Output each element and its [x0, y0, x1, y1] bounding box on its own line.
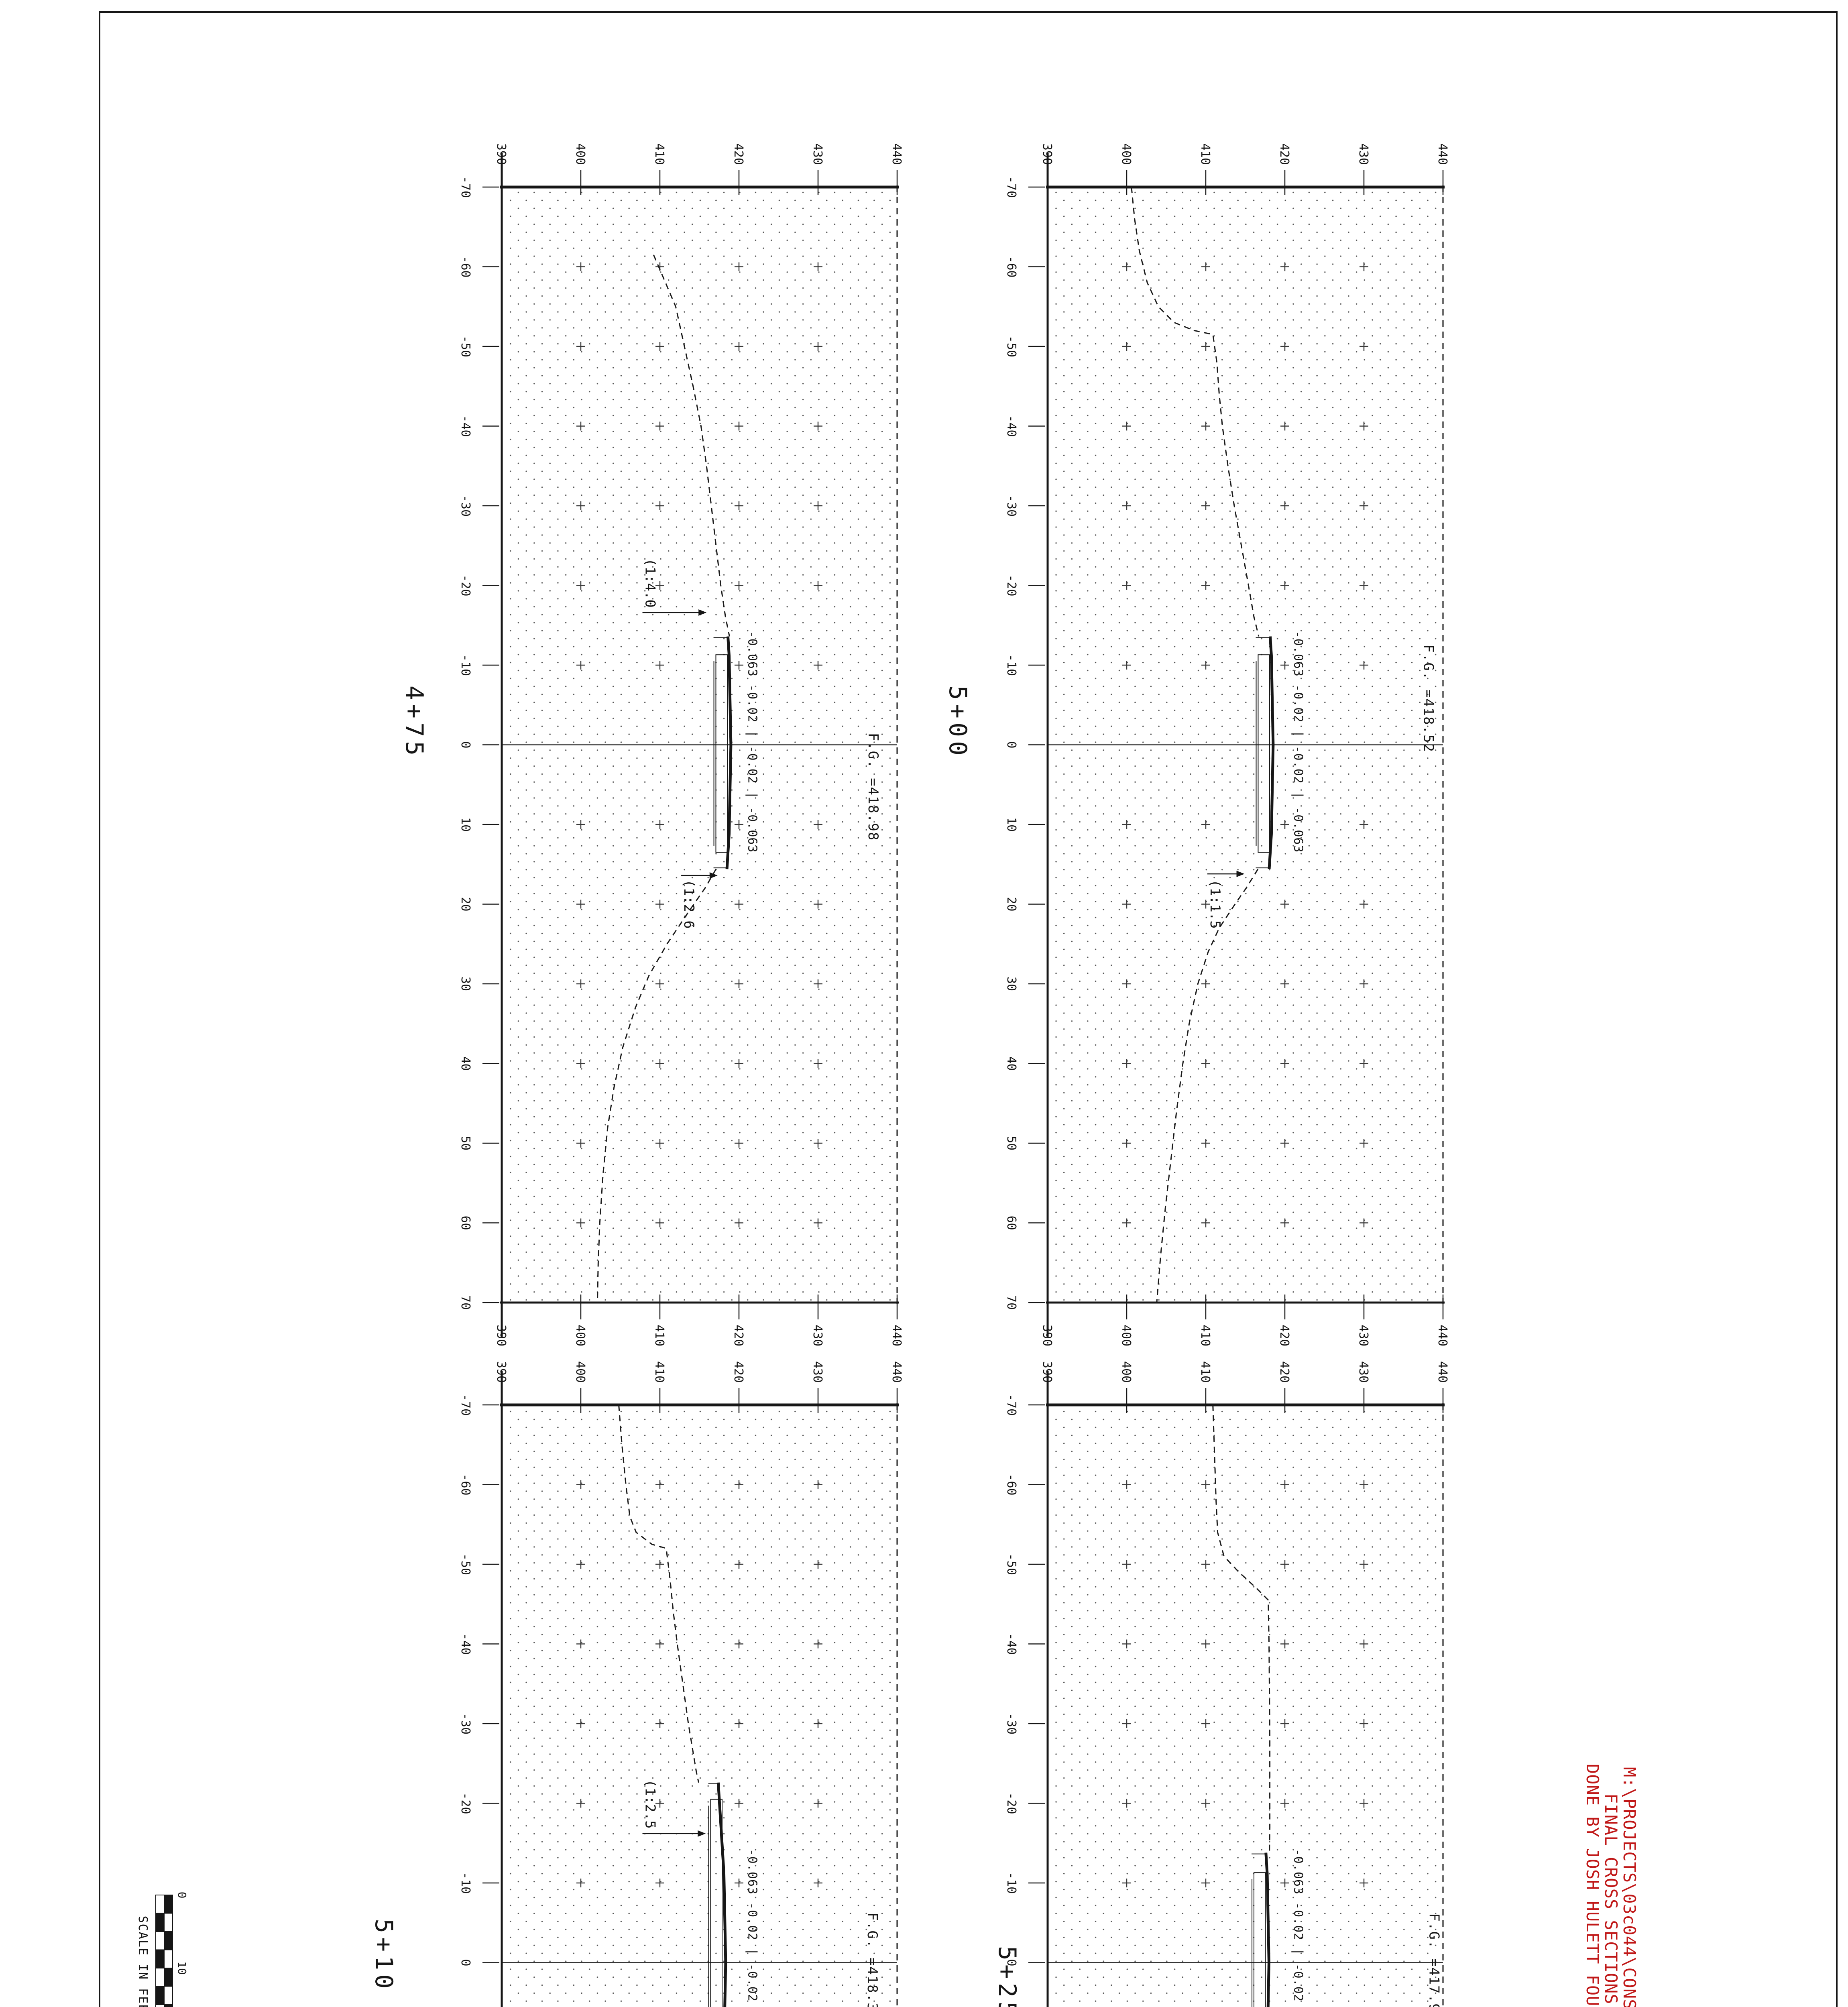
station-label: 4+75	[400, 686, 428, 760]
offset-label: -10	[458, 1872, 472, 1894]
slope-callout-text: (1:1.5	[1207, 879, 1223, 929]
red-note-line-3: DONE BY JOSH HULETT FOUND IN THE ABOVE F…	[1583, 1764, 1602, 2007]
offset-label: 0	[458, 1959, 472, 1966]
offset-label: -70	[458, 1394, 472, 1416]
scale-bar: 01020SCALE IN FEET	[136, 1892, 189, 2007]
elevation-label-left: 440	[889, 143, 904, 165]
offset-label: 0	[458, 741, 472, 748]
elevation-label-left: 420	[731, 1361, 745, 1383]
slope-annotation: -0.063 -0.02 | -0.02 | -0.063	[745, 1849, 759, 2007]
offset-label: 60	[1004, 1215, 1018, 1230]
scale-bar-segment	[164, 2005, 173, 2007]
offset-label: -30	[1004, 495, 1018, 517]
scale-bar-segment	[156, 1932, 164, 1950]
scale-bar-segment	[156, 2005, 164, 2007]
cross-section-5+00: 390390400400410410420420430430440440-70-…	[944, 143, 1449, 1346]
scale-bar-segment	[164, 1968, 173, 1987]
offset-label: 70	[1004, 1295, 1018, 1310]
offset-label: -20	[1004, 574, 1018, 596]
scale-bar-segment	[156, 1913, 164, 1932]
offset-label: 70	[458, 1295, 472, 1310]
offset-label: -60	[1004, 256, 1018, 277]
plots-canvas: 390390400400410410420420430430440440-70-…	[0, 0, 1848, 2007]
offset-label: 60	[458, 1215, 472, 1230]
scale-bar-segment	[164, 1950, 173, 1968]
slope-callout-text: (1:4.0	[642, 558, 658, 608]
offset-label: 0	[1004, 741, 1018, 748]
scale-bar-tick-label: 10	[175, 1961, 189, 1975]
elevation-label-left: 390	[494, 1361, 508, 1383]
station-label: 5+25	[993, 1946, 1021, 2007]
dot-grid	[504, 1407, 895, 2007]
offset-label: -50	[1004, 336, 1018, 357]
offset-label: -40	[458, 1633, 472, 1655]
offset-label: 20	[1004, 897, 1018, 911]
offset-label: -40	[458, 415, 472, 437]
elevation-label-left: 430	[1356, 1361, 1370, 1383]
offset-label: -20	[458, 1792, 472, 1814]
fg-elevation-label: F.G. =418.52	[1421, 644, 1437, 753]
offset-label: 20	[458, 897, 472, 911]
elevation-label-left: 420	[731, 143, 745, 165]
elevation-label-left: 420	[1277, 1361, 1291, 1383]
fg-elevation-label: F.G. =418.32	[864, 1912, 880, 2007]
elevation-label-right: 440	[1435, 1325, 1449, 1346]
offset-label: -60	[1004, 1474, 1018, 1495]
offset-label: 50	[458, 1136, 472, 1150]
slope-annotation: -0.063 -0.02 | -0.02 | -0.063	[745, 631, 759, 853]
elevation-label-left: 400	[573, 143, 587, 165]
elevation-label-right: 390	[494, 1325, 508, 1346]
scale-bar-segment	[164, 1987, 173, 2005]
station-label: 5+00	[944, 686, 972, 760]
elevation-label-left: 390	[1040, 143, 1054, 165]
scale-bar-segment	[164, 1932, 173, 1950]
cross-section-5+25: 390390400400410410420420430430440440-70-…	[993, 1361, 1449, 2007]
elevation-label-left: 390	[1040, 1361, 1054, 1383]
offset-label: 40	[458, 1056, 472, 1071]
elevation-label-left: 410	[652, 143, 666, 165]
offset-label: -10	[1004, 1872, 1018, 1894]
scale-bar-segment	[156, 1987, 164, 2005]
offset-label: 30	[458, 977, 472, 991]
offset-label: -60	[458, 1474, 472, 1495]
elevation-label-left: 410	[1198, 1361, 1212, 1383]
offset-label: 10	[458, 817, 472, 832]
offset-label: -50	[458, 1553, 472, 1575]
elevation-label-left: 410	[652, 1361, 666, 1383]
elevation-label-right: 410	[652, 1325, 666, 1346]
offset-label: 40	[1004, 1056, 1018, 1071]
offset-label: -30	[458, 495, 472, 517]
elevation-label-right: 400	[1119, 1325, 1133, 1346]
slope-callout-text: (1:2.5	[642, 1779, 658, 1829]
offset-label: -40	[1004, 415, 1018, 437]
offset-label: -70	[458, 176, 472, 198]
sheet-border	[100, 12, 1837, 2007]
elevation-label-left: 440	[1435, 143, 1449, 165]
elevation-label-right: 430	[810, 1325, 824, 1346]
elevation-label-left: 400	[573, 1361, 587, 1383]
elevation-label-right: 440	[889, 1325, 904, 1346]
fg-elevation-label: F.G. =418.98	[865, 733, 881, 841]
scanned-sheet-page: 390390400400410410420420430430440440-70-…	[0, 0, 1848, 2007]
red-note-line-2: FINAL CROSS SECTIONS FOR HUBBARDTON ST 0…	[1601, 1793, 1621, 2007]
scale-bar-tick-label: 0	[175, 1892, 189, 1899]
elevation-label-right: 400	[573, 1325, 587, 1346]
offset-label: 10	[1004, 817, 1018, 832]
offset-label: -30	[1004, 1713, 1018, 1734]
scale-bar-segment	[156, 1950, 164, 1968]
elevation-label-left: 400	[1119, 1361, 1133, 1383]
slope-annotation: -0.063 -0.02 | -0.02 | -0.063	[1291, 1849, 1305, 2007]
red-note-line-1: M:\PROJECTS\03c044\CONSTRUCTION\FINAL XS…	[1620, 1767, 1639, 2007]
elevation-label-left: 410	[1198, 143, 1212, 165]
elevation-label-left: 430	[810, 143, 824, 165]
scale-bar-segment	[164, 1895, 173, 1913]
elevation-label-left: 430	[810, 1361, 824, 1383]
offset-label: -20	[458, 574, 472, 596]
slope-callout-text: (1:2.6	[681, 879, 697, 929]
offset-label: 50	[1004, 1136, 1018, 1150]
offset-label: -70	[1004, 176, 1018, 198]
elevation-label-left: 430	[1356, 143, 1370, 165]
elevation-label-right: 420	[731, 1325, 745, 1346]
offset-label: -20	[1004, 1792, 1018, 1814]
offset-label: -10	[1004, 654, 1018, 676]
offset-label: -70	[1004, 1394, 1018, 1416]
dot-grid	[1050, 1407, 1441, 2007]
fg-elevation-label: F.G. =417.99	[1426, 1913, 1442, 2007]
elevation-label-left: 400	[1119, 143, 1133, 165]
cross-section-5+10-drive-left: 390390400400410410420420430430440440-70-…	[370, 1361, 904, 2007]
offset-label: -50	[1004, 1553, 1018, 1575]
slope-annotation: -0.063 -0.02 | -0.02 | -0.063	[1291, 631, 1305, 853]
scale-bar-segment	[156, 1968, 164, 1987]
elevation-label-right: 420	[1277, 1325, 1291, 1346]
cross-section-sheet: 390390400400410410420420430430440440-70-…	[0, 0, 1848, 2007]
elevation-label-right: 430	[1356, 1325, 1370, 1346]
offset-label: -30	[458, 1713, 472, 1734]
elevation-label-left: 440	[1435, 1361, 1449, 1383]
cross-section-4+75: 390390400400410410420420430430440440-70-…	[400, 143, 904, 1346]
scale-bar-segment	[164, 1913, 173, 1932]
elevation-label-left: 420	[1277, 143, 1291, 165]
scale-bar-segment	[156, 1895, 164, 1913]
elevation-label-right: 410	[1198, 1325, 1212, 1346]
station-label: 5+10 DRIVE LEFT	[370, 1919, 398, 2007]
elevation-label-left: 440	[889, 1361, 904, 1383]
offset-label: -60	[458, 256, 472, 277]
elevation-label-left: 390	[494, 143, 508, 165]
scale-bar-caption: SCALE IN FEET	[136, 1916, 150, 2007]
offset-label: -10	[458, 654, 472, 676]
offset-label: -40	[1004, 1633, 1018, 1655]
offset-label: -50	[458, 336, 472, 357]
elevation-label-right: 390	[1040, 1325, 1054, 1346]
offset-label: 30	[1004, 977, 1018, 991]
